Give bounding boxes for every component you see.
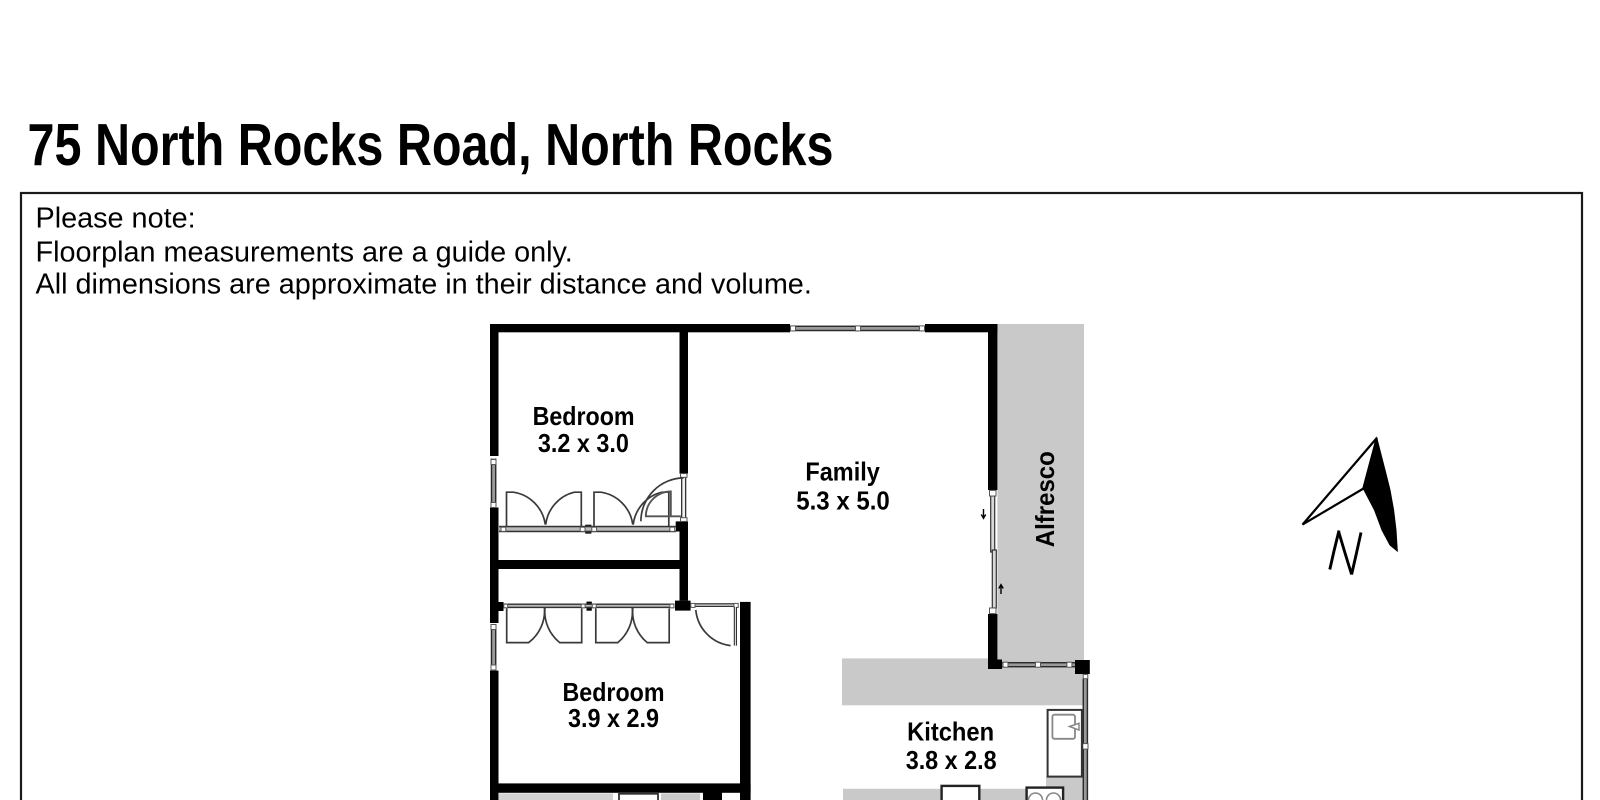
svg-text:Kitchen: Kitchen [907,717,994,747]
svg-text:Please note:: Please note: [36,203,196,235]
svg-text:3.9 x 2.9: 3.9 x 2.9 [568,703,659,733]
svg-text:75 North Rocks Road, North Roc: 75 North Rocks Road, North Rocks [28,112,834,178]
svg-text:Bedroom: Bedroom [533,401,635,431]
svg-text:3.2 x 3.0: 3.2 x 3.0 [538,428,629,458]
svg-text:All dimensions are approximate: All dimensions are approximate in their … [36,268,812,300]
svg-text:5.3 x 5.0: 5.3 x 5.0 [796,486,890,516]
svg-text:Family: Family [805,457,880,487]
svg-text:Floorplan measurements are a g: Floorplan measurements are a guide only. [36,237,573,269]
svg-text:3.8 x 2.8: 3.8 x 2.8 [906,745,997,775]
svg-text:Alfresco: Alfresco [1030,451,1060,547]
